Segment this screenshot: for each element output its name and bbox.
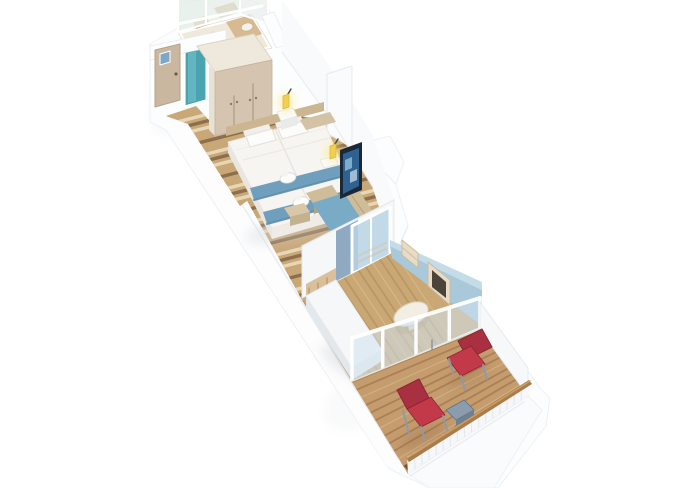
wall-lamp — [283, 94, 289, 109]
cabin-floorplan-3d — [0, 0, 680, 488]
floorplan-image — [0, 0, 680, 488]
wardrobe-handle — [249, 99, 251, 101]
door-handle — [174, 72, 177, 75]
wall-lamp — [330, 144, 336, 159]
right-wall-pillar — [327, 66, 352, 148]
door-safety-plaque — [160, 51, 170, 65]
bathroom-door-panel — [188, 51, 196, 103]
wardrobe-handle — [255, 97, 257, 99]
wardrobe-side — [209, 66, 215, 136]
wardrobe-handle — [230, 103, 232, 105]
wardrobe-handle — [236, 101, 238, 103]
